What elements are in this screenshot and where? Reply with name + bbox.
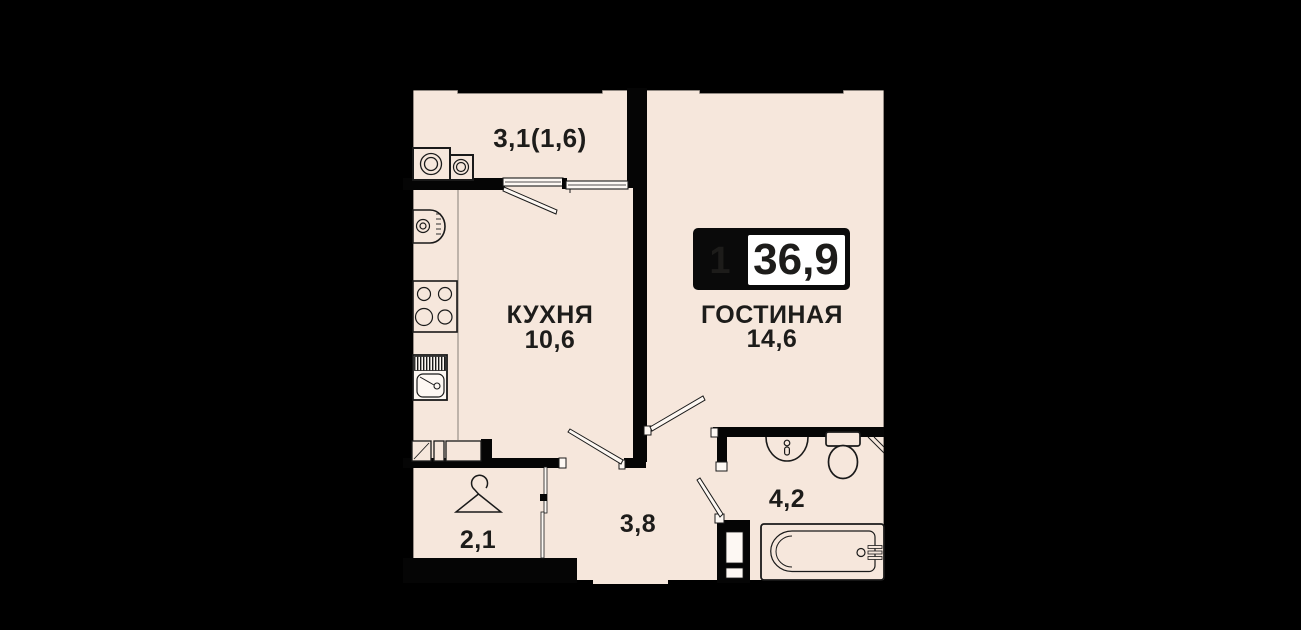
wall-cabinet-endcap (481, 439, 492, 459)
floorplan-drawing: 1 36,9 3,1(1,6) КУХНЯ 10,6 ГОСТИНАЯ 14,6… (0, 0, 1301, 630)
stove-icon (413, 281, 457, 332)
wall-stub-kitchen-door (624, 458, 646, 468)
wall-bathroom-stub (717, 437, 727, 463)
door-jamb-icon (711, 428, 718, 437)
shaft-slot-icon (726, 532, 743, 563)
kitchen-sink-icon (413, 355, 447, 400)
shaft-slot-icon (726, 568, 743, 578)
balcony-area-label: 3,1(1,6) (493, 123, 587, 153)
door-jamb-icon (716, 462, 727, 471)
living-area-label: 14,6 (747, 325, 798, 353)
door-jamb-icon (559, 458, 566, 468)
wardrobe-area-label: 2,1 (460, 526, 496, 554)
cabinet-row-icon (412, 441, 481, 461)
duct-shaft-slots (726, 532, 743, 578)
bathtub-icon (761, 524, 884, 580)
badge-room-count: 1 (709, 240, 730, 282)
floorplan-canvas: 1 36,9 3,1(1,6) КУХНЯ 10,6 ГОСТИНАЯ 14,6… (0, 0, 1301, 630)
kitchen-name-label: КУХНЯ (507, 301, 594, 329)
washing-machine-icon (413, 148, 450, 180)
toilet-icon (826, 432, 860, 479)
boiler-icon (413, 210, 445, 243)
badge-total-area: 36,9 (753, 235, 839, 284)
bathroom-area-label: 4,2 (769, 485, 805, 513)
wall-kitchen-living-divider (633, 88, 647, 462)
washing-machine-small-icon (450, 155, 473, 180)
hall-area-label: 3,8 (620, 510, 656, 538)
kitchen-area-label: 10,6 (525, 326, 576, 354)
apartment-badge: 1 36,9 (693, 228, 850, 290)
wall-wardrobe-bottom (403, 558, 577, 583)
